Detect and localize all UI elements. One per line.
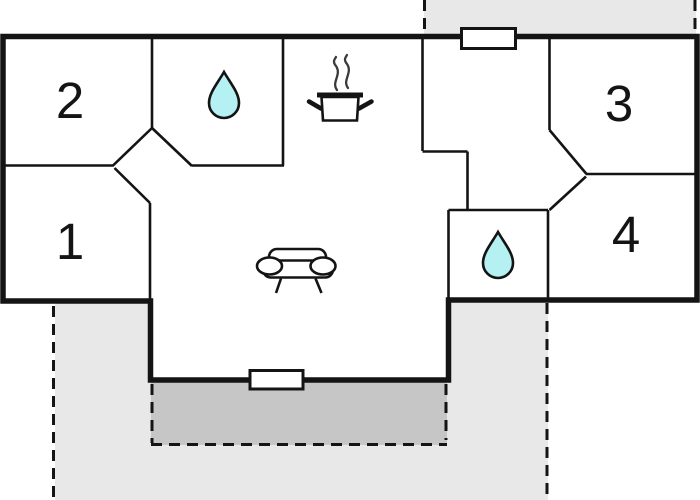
floor-plan: 1 2 3 4 [0,0,700,500]
cooking-pot-icon [309,55,372,121]
sofa-leg-left [276,279,281,294]
pot-handle-left [309,102,321,109]
door-room3 [550,130,587,174]
door-bath-top [152,128,192,166]
room-3-label: 3 [605,75,633,132]
door-room4 [550,177,587,211]
water-drop-icon [209,72,239,118]
sofa-icon [257,249,336,293]
window-marker-bottom [250,371,303,390]
room-2-label: 2 [56,72,84,129]
room-1-label: 1 [56,213,84,270]
pot-body [322,97,359,121]
door-room2 [113,128,153,166]
steam-icon [334,57,338,90]
water-drop-icon [483,232,513,278]
door-room1 [115,168,151,203]
pot-handle-right [359,102,372,109]
sofa-armrest-left [257,258,282,275]
window-marker-top [462,29,516,49]
floor-plan-page: 1 2 3 4 [0,0,700,500]
sofa-armrest-right [311,258,336,275]
sofa-leg-right [316,279,322,294]
steam-icon [345,55,349,88]
room-4-label: 4 [612,206,640,263]
